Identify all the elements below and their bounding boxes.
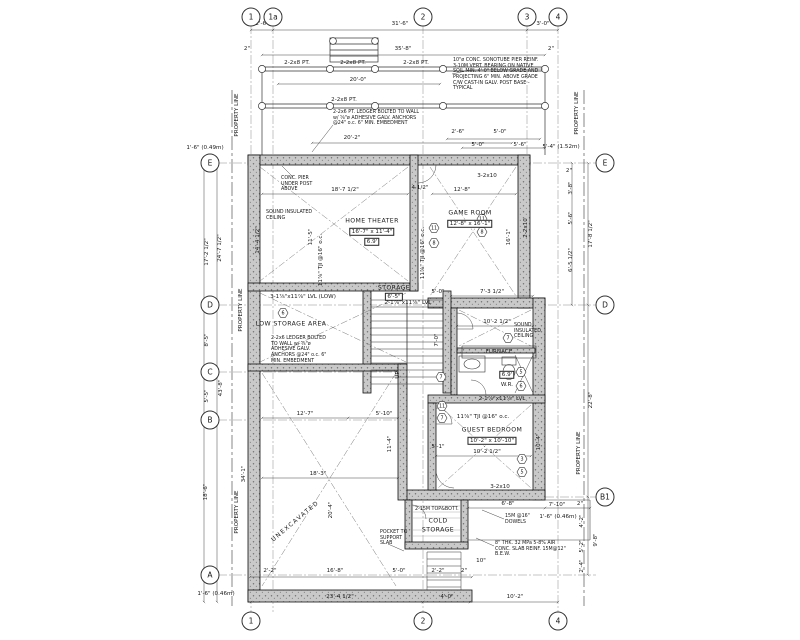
note-sound-ceiling-2: SOUND INSULATED CEILING (514, 323, 544, 340)
tag-washroom-1: 5 (516, 368, 526, 377)
tag-home-theater-1: 11 (429, 224, 439, 233)
dim-furnace-width: 10'-2 1/2" (483, 319, 511, 325)
dim-right-tick-1: 2" (566, 168, 572, 174)
svg-text:7: 7 (439, 375, 442, 381)
dim-slab-width-2: 7'-10" (549, 502, 566, 508)
grid-bubble-left-b: B (201, 411, 220, 430)
deck-beam-label-2: 2-2x8 PT. (340, 60, 366, 66)
property-line-label-left-1: PROPERTY LINE (234, 93, 240, 136)
beam-label-guest: 3-2x10 (490, 484, 510, 490)
dim-bottom-offset: 1'-6" (0.46m) (197, 591, 234, 597)
room-label-guest-bedroom: GUEST BEDROOM (462, 426, 522, 433)
dim-right-tick-2: 2" (577, 501, 583, 507)
grid-bubble-left-d: D (201, 296, 220, 315)
note-sonotube-pier: 10"ø CONC. SONOTUBE PIER REINF. 3-10M VE… (453, 58, 541, 92)
property-line-label-right-1: PROPERTY LINE (574, 91, 580, 134)
grid-bubble-top-3: 3 (518, 8, 537, 27)
dim-right-e-d-2: 5'-6" (568, 211, 574, 224)
note-pocket: POCKET TO SUPPORT SLAB (380, 530, 412, 547)
dim-storage-2: 7'-3 1/2" (480, 289, 504, 295)
dim-left-e-d-1: 17'-2 1/2" (204, 238, 210, 266)
dim-slab-width-1: 6'-8" (501, 501, 514, 507)
dim-top-right-4: 5'-6" (513, 142, 526, 148)
note-topbott: 2-15M TOP&BOTT. (415, 507, 459, 513)
dim-bottom-inner-3: 5'-0" (392, 568, 405, 574)
dim-right-b1-2: 5'-2" (579, 539, 585, 552)
svg-text:5: 5 (520, 470, 523, 476)
grid-bubble-right-b1: B1 (596, 488, 615, 507)
dim-left-e-d-2: 24'-7 1/2" (217, 234, 223, 262)
dim-deck-ledger: 20'-2" (344, 135, 361, 141)
grid-bubble-top-2: 2 (414, 8, 433, 27)
room-label-game-room: GAME ROOM (448, 209, 491, 216)
dim-bottom-main-1: 23'-4 1/2" (326, 594, 354, 600)
room-size-guest-bedroom: 10'-2" x 10'-10" (467, 437, 516, 445)
dim-bottom-main-3: 10'-2" (507, 594, 524, 600)
tag-washroom-2: 6 (516, 382, 526, 391)
dim-bottom-inner-1: 2'-2" (263, 568, 276, 574)
svg-text:7: 7 (506, 336, 509, 342)
dim-top-tick-left: 2" (244, 46, 250, 52)
dim-top-right-2: 5'-0" (493, 129, 506, 135)
svg-text:8: 8 (480, 230, 483, 236)
dim-right-b1-1: 4'-2" (579, 514, 585, 527)
main-stairs (371, 300, 443, 390)
dim-top-3-4: 3'-0" (536, 21, 549, 27)
note-leaders (282, 69, 543, 551)
grid-bubble-right-d: D (596, 296, 615, 315)
tag-game-room-2: 8 (477, 228, 487, 237)
note-conc-pier: CONC. PIER UNDER POST ABOVE (281, 176, 325, 193)
dim-top-span: 35'-8" (395, 46, 412, 52)
dim-guest-side: 5'-1" (431, 444, 444, 450)
dim-left-c-b: 5'-5" (204, 389, 210, 402)
tag-home-theater-2: 8 (429, 239, 439, 248)
room-size-game-room: 12'-8" x 16'-1" (447, 220, 492, 228)
note-dowels: 15M @16" DOWELS (505, 514, 545, 525)
room-height-home-theater: 6.9' (364, 238, 379, 246)
room-label-cold-2: STORAGE (422, 526, 454, 533)
room-label-home-theater: HOME THEATER (345, 217, 399, 224)
dim-bottom-main-2: 4'-0" (440, 594, 453, 600)
beam-label-lvl-2: 2-1⅞"x11⅞" LVL (479, 396, 526, 402)
dim-unex-5: 20'-4" (328, 502, 334, 519)
svg-text:8: 8 (432, 241, 435, 247)
dim-left-offset: 1'-6" (0.49m) (186, 145, 223, 151)
dim-unex-3: 11'-4" (387, 436, 393, 453)
note-slab: 8" THK. 32 MPa 5-8% AIR CONC. SLAB REINF… (495, 541, 567, 558)
dim-bottom-inner-4: 2'-2" (431, 568, 444, 574)
room-size-home-theater: 16'-7" x 11'-4" (349, 228, 394, 236)
dim-right-e-d-3: 6'-5 1/2" (568, 248, 574, 272)
dim-ht-height-1: 14'-4 1/2" (255, 226, 261, 254)
grid-bubble-top-1: 1 (242, 8, 261, 27)
tag-low-storage: 6 (278, 309, 288, 318)
svg-text:7: 7 (440, 416, 443, 422)
dim-guest-right: 10'-4" (536, 434, 542, 451)
dim-guest-width: 10'-2 1/2" (473, 449, 501, 455)
dim-right-e-d-1: 3'-8" (568, 181, 574, 194)
dim-left-d-c: 8'-5" (204, 333, 210, 346)
grid-bubble-bottom-1: 1 (242, 612, 261, 631)
basement-floor-plan: 11 8 11 8 6 7 7 5 6 11 7 3 5 1 1a 2 3 4 … (0, 0, 800, 640)
grid-bubble-left-a: A (201, 566, 220, 585)
dim-right-b1-3: 2'-4" (579, 559, 585, 572)
dim-stair-small: 10" (476, 558, 486, 564)
room-label-cold-1: COLD (428, 517, 447, 524)
property-line-label-right-2: PROPERTY LINE (576, 431, 582, 474)
tag-stair: 7 (436, 373, 446, 382)
dim-bottom-inner-2: 16'-8" (327, 568, 344, 574)
svg-text:6: 6 (519, 384, 522, 390)
tag-guest-4: 5 (517, 468, 527, 477)
grid-bubble-right-e: E (596, 154, 615, 173)
dim-right-offset: 5'-4" (1.52m) (542, 144, 579, 150)
dim-top-right-3: 5'-0" (471, 142, 484, 148)
room-height-washroom: 6.9' (499, 371, 514, 379)
dim-left-overall: 43'-8" (218, 380, 224, 397)
note-ledger-low: 2-2x6 LEDGER BOLTED TO WALL w/ ⅝"ø ADHES… (271, 336, 333, 364)
dim-gr-width: 12'-8" (454, 187, 471, 193)
dim-top-right-1: 2'-6" (451, 129, 464, 135)
svg-text:6: 6 (281, 311, 284, 317)
dim-stair-height: 7'-0" (434, 333, 440, 346)
dim-left-property-seg: 34'-1" (241, 466, 247, 483)
tag-guest-2: 7 (437, 414, 447, 423)
svg-text:5: 5 (519, 370, 522, 376)
svg-text:11: 11 (439, 404, 445, 410)
grid-bubble-bottom-4: 4 (549, 612, 568, 631)
joist-note-home-theater: 11⅞" TJI @16" o.c. (318, 234, 324, 286)
room-label-washroom: W.R. (501, 382, 513, 388)
beam-label-lvl-1: 2-1⅞"x11⅞" LVL (385, 300, 432, 306)
dim-top-overall: 31'-6" (392, 21, 409, 27)
tag-guest-1: 11 (437, 402, 447, 411)
joist-note-guest: 11⅞" TJI @16" o.c. (457, 414, 509, 420)
property-line-label-left-2: PROPERTY LINE (238, 288, 244, 331)
grid-bubble-left-e: E (201, 154, 220, 173)
dim-ht-width: 18'-7 1/2" (331, 187, 359, 193)
grid-bubble-top-1a: 1a (264, 8, 283, 27)
deck-beam-label-3: 2-2x8 PT. (403, 60, 429, 66)
dim-storage-1: 5'-0" (431, 289, 444, 295)
deck-beam-label-4: 2-2x8 PT. (331, 97, 357, 103)
dim-ht-height-2: 11'-5" (308, 229, 314, 246)
grid-bubble-bottom-2: 2 (414, 612, 433, 631)
room-label-furnace: FURNACE (486, 349, 513, 355)
note-sound-ceiling-1: SOUND INSULATED CEILING (266, 210, 314, 221)
note-ledger-pt: 2-2x6 PT. LEDGER BOLTED TO WALL w/ ⅝"ø A… (333, 110, 423, 127)
dim-unex-4: 18'-3" (310, 471, 327, 477)
dim-bottom-inner-5: 2" (461, 568, 467, 574)
beam-label-game-room-2: 2-2x10 (523, 218, 529, 238)
tag-guest-3: 3 (517, 455, 527, 464)
room-label-low-storage: LOW STORAGE AREA (256, 320, 327, 327)
svg-text:11: 11 (431, 226, 437, 232)
stair-up-label: UP (395, 371, 401, 378)
dim-unex-1: 12'-7" (297, 411, 314, 417)
grid-bubble-left-c: C (201, 363, 220, 382)
dim-deck-span: 20'-0" (350, 77, 367, 83)
deck-beam-label-1: 2-2x8 PT. (284, 60, 310, 66)
dim-right-e-d-total: 17'-8 1/2" (588, 220, 594, 248)
tag-furnace: 7 (503, 334, 513, 343)
svg-text:3: 3 (520, 457, 523, 463)
beam-label-game-room-1: 3-2x10 (477, 173, 497, 179)
dim-unex-2: 5'-10" (376, 411, 393, 417)
dim-right-b1-total: 9'-8" (593, 533, 599, 546)
joist-note-game-room: 11⅞" TJI @16" o.c. (420, 227, 426, 279)
dim-left-b-a: 18'-6" (203, 484, 209, 501)
dim-top-tick-right: 2" (548, 46, 554, 52)
dim-gr-height: 16'-1" (506, 229, 512, 246)
dim-right-d-b1: 22'-8" (588, 392, 594, 409)
beam-label-lvl-low: 3-1⅞"x11⅞" LVL (LOW) (270, 294, 336, 300)
room-label-storage: STORAGE (378, 284, 410, 291)
property-line-label-left-3: PROPERTY LINE (234, 490, 240, 533)
grid-bubble-top-4: 4 (549, 8, 568, 27)
dim-ht-offset: 4 1/2" (412, 185, 429, 191)
